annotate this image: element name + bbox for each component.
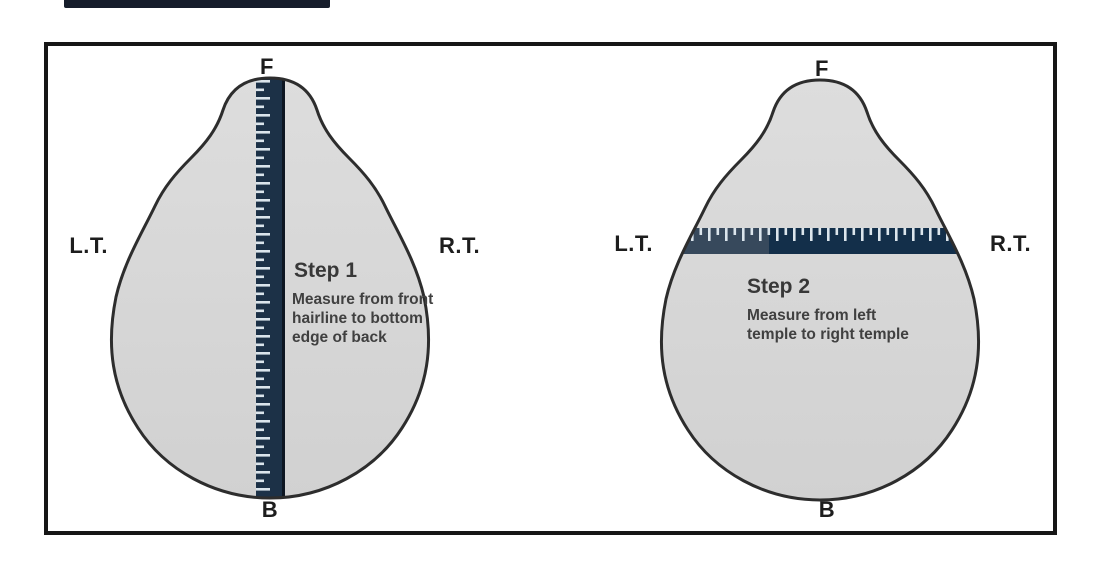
instruction-line: temple to right temple [747,325,909,344]
head-outline-fill [661,80,978,500]
horizontal-ruler [649,228,997,254]
cropped-top-bar [64,0,330,8]
step1-title: Step 1 [294,259,357,283]
instruction-line: Measure from front [292,290,433,309]
step2-instructions: Measure from left temple to right temple [747,306,909,344]
vertical-ruler [256,76,285,501]
right-temple-label-step2: R.T. [990,231,1031,257]
step1-instructions: Measure from front hairline to bottom ed… [292,290,433,347]
instruction-line: Measure from left [747,306,909,325]
right-temple-label-step1: R.T. [439,233,480,259]
left-temple-label-step1: L.T. [56,233,108,259]
instruction-line: hairline to bottom [292,309,433,328]
back-label-step2: B [812,497,842,523]
front-label-step2: F [807,56,837,82]
head-top-view-step2 [649,74,997,512]
instruction-line: edge of back [292,328,433,347]
left-temple-label-step2: L.T. [601,231,653,257]
front-label-step1: F [252,54,282,80]
screenshot-root: F B L.T. R.T. Step 1 Measure from front … [0,0,1100,563]
step2-title: Step 2 [747,275,810,299]
back-label-step1: B [255,497,285,523]
